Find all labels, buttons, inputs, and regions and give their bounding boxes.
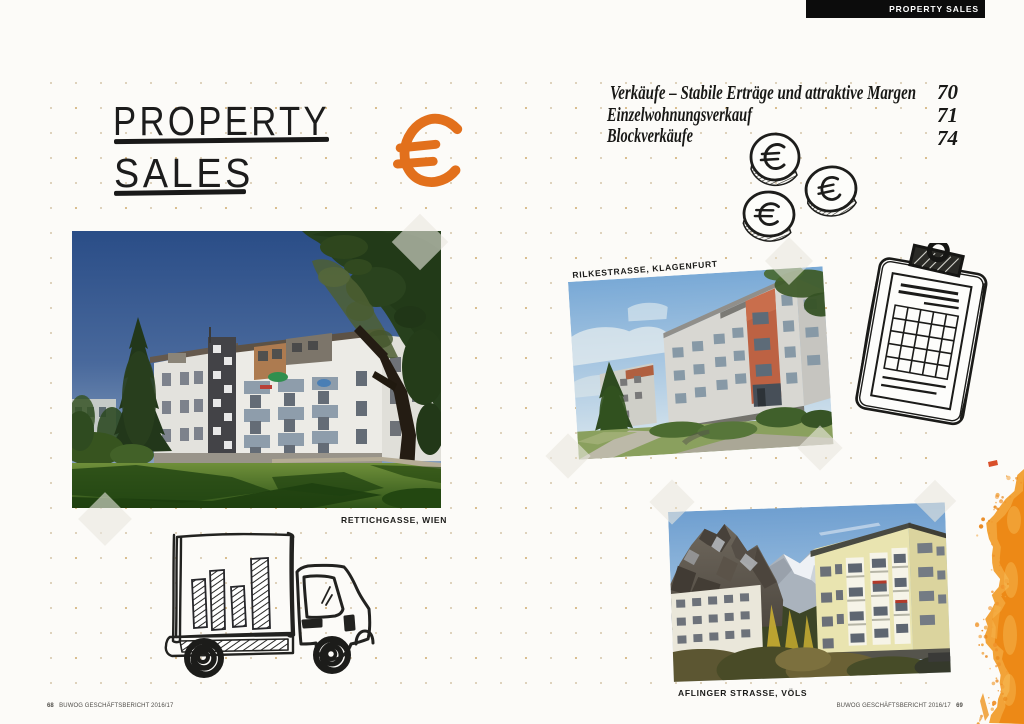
svg-text:Einzelwohnungsverkauf: Einzelwohnungsverkauf (606, 104, 753, 126)
svg-text:70: 70 (937, 80, 959, 104)
svg-text:Verkäufe – Stabile Erträge und: Verkäufe – Stabile Erträge und attraktiv… (610, 82, 916, 104)
svg-text:71: 71 (937, 103, 958, 127)
svg-text:Blockverkäufe: Blockverkäufe (606, 125, 693, 147)
svg-text:74: 74 (937, 126, 958, 150)
